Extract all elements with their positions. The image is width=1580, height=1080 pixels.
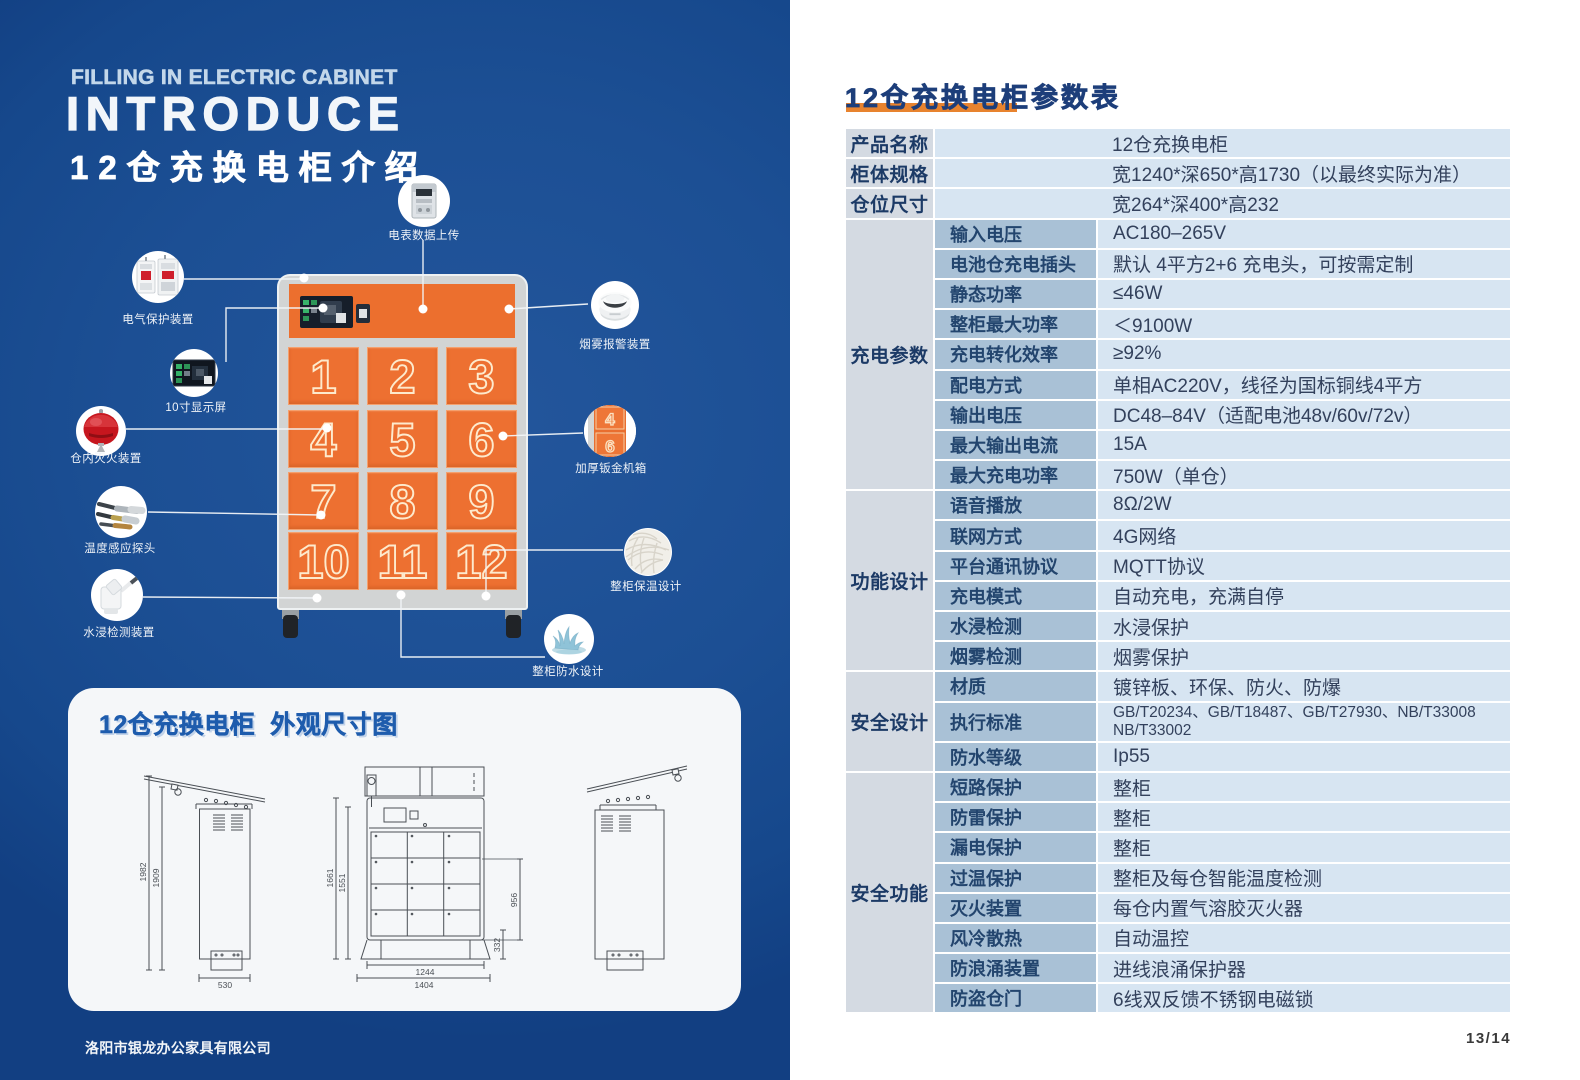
svg-text:956: 956 [509, 893, 519, 907]
svg-text:530: 530 [218, 980, 232, 990]
svg-text:1244: 1244 [416, 967, 435, 977]
svg-text:6: 6 [605, 437, 614, 456]
svg-text:1551: 1551 [337, 873, 347, 892]
svg-text:332: 332 [492, 938, 502, 952]
svg-text:1982: 1982 [138, 862, 148, 881]
svg-text:1909: 1909 [151, 868, 161, 887]
svg-text:4: 4 [605, 410, 615, 429]
svg-text:1661: 1661 [325, 868, 335, 887]
svg-text:1404: 1404 [415, 980, 434, 990]
